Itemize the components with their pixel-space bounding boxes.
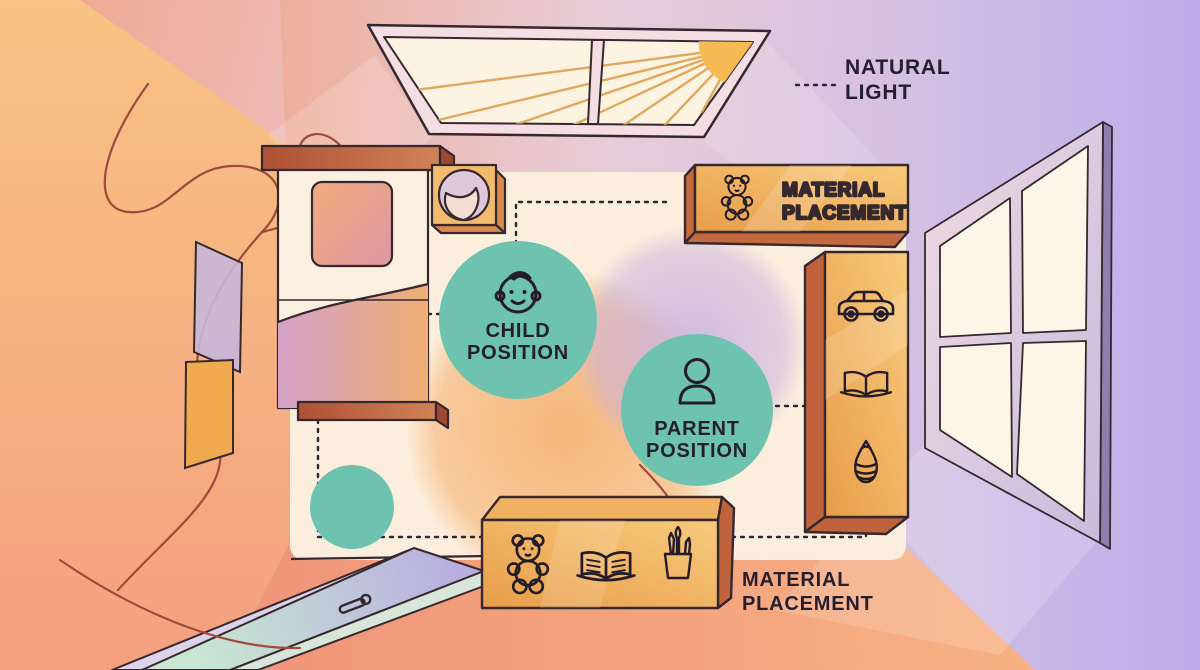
material-bottom-line2: PLACEMENT <box>742 593 874 615</box>
teal-spot <box>310 465 394 549</box>
child-position: CHILD POSITION <box>439 241 597 399</box>
parent-line2: POSITION <box>646 440 748 462</box>
material-bottom-line1: MATERIAL <box>742 569 850 591</box>
wall-hanging-orange <box>185 360 233 468</box>
wall-hanging-lavender <box>194 242 242 372</box>
material-box-top: MATERIAL PLACEMENT <box>685 165 908 247</box>
material-top-line1: MATERIAL <box>782 180 885 201</box>
shelf-right <box>805 252 908 534</box>
room-diagram: NATURAL LIGHT MATERIAL PLACE <box>0 0 1200 670</box>
parent-position: PARENT POSITION <box>621 334 773 486</box>
material-top-line2: PLACEMENT <box>782 203 907 224</box>
bed <box>262 146 454 428</box>
parent-line1: PARENT <box>654 418 740 440</box>
natural-light-line1: NATURAL <box>845 56 951 79</box>
bed-pillow <box>312 182 392 266</box>
shelf-bottom <box>482 497 734 608</box>
basket <box>432 165 505 233</box>
natural-light-line2: LIGHT <box>845 81 912 104</box>
child-line2: POSITION <box>467 342 569 364</box>
child-line1: CHILD <box>485 320 550 342</box>
